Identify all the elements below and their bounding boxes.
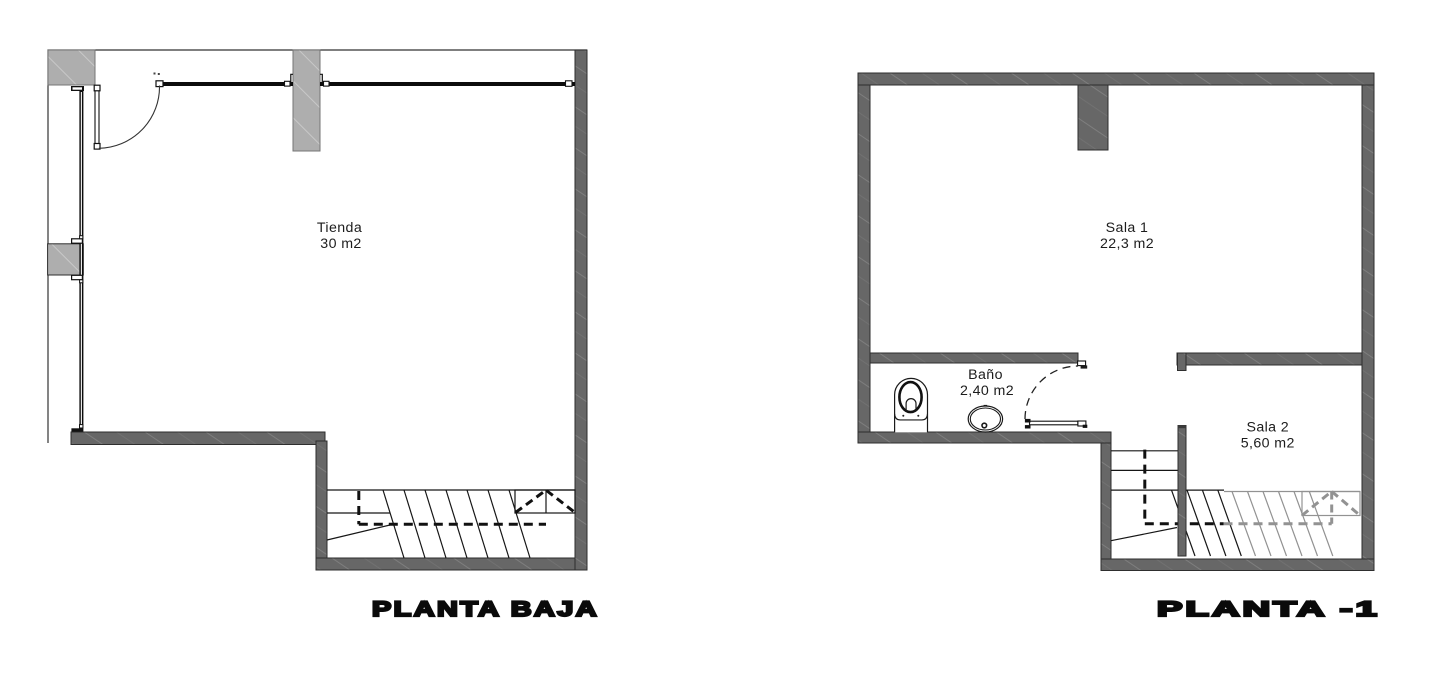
svg-text:Sala 2: Sala 2 bbox=[1246, 420, 1289, 436]
svg-text:Sala 1: Sala 1 bbox=[1106, 220, 1149, 236]
svg-text:2,40 m2: 2,40 m2 bbox=[960, 383, 1014, 399]
svg-text:30 m2: 30 m2 bbox=[320, 236, 361, 252]
svg-text:Tienda: Tienda bbox=[317, 220, 362, 236]
svg-text:PLANTA BAJA: PLANTA BAJA bbox=[372, 597, 599, 621]
svg-text:5,60 m2: 5,60 m2 bbox=[1241, 436, 1295, 452]
svg-text:PLANTA -1: PLANTA -1 bbox=[1157, 597, 1380, 621]
svg-text:Baño: Baño bbox=[968, 367, 1003, 383]
svg-text:22,3 m2: 22,3 m2 bbox=[1100, 236, 1154, 252]
